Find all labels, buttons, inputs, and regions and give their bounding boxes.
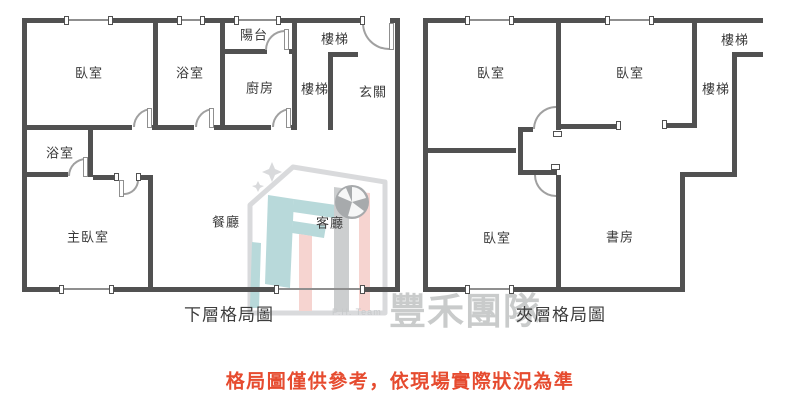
wall-segment: [732, 52, 737, 177]
door-arc: [533, 106, 556, 129]
door-leaf: [284, 29, 289, 50]
wall-segment: [27, 125, 132, 130]
room-label-dining: 餐廳: [212, 212, 240, 231]
wall-segment: [22, 172, 68, 177]
wall-segment: [22, 18, 27, 292]
window-marker: [234, 16, 239, 25]
wall-segment: [652, 18, 763, 23]
wall-segment: [220, 23, 225, 130]
disclaimer-text: 格局圖僅供參考，依現場實際狀況為準: [226, 367, 575, 394]
door-leaf: [83, 157, 88, 177]
wall-segment: [423, 18, 428, 292]
window: [608, 19, 652, 21]
wall-segment: [112, 287, 277, 292]
door-arc: [362, 23, 389, 50]
wall-segment: [518, 127, 523, 175]
window-marker: [64, 16, 69, 25]
door-leaf: [389, 23, 394, 50]
wall-segment: [556, 175, 561, 287]
room-label-stairs2-mezz: 樓梯: [702, 79, 730, 98]
window: [468, 19, 512, 21]
door-jamb-marker: [114, 173, 119, 181]
room-label-stairs2: 樓梯: [301, 79, 329, 98]
window-marker: [59, 285, 64, 294]
room-label-balcony: 陽台: [240, 25, 268, 44]
room-label-bedroom: 臥室: [75, 63, 103, 82]
window-marker: [605, 16, 610, 25]
door-leaf: [209, 108, 214, 128]
sparkle-icon: [252, 181, 264, 192]
wall-segment: [692, 23, 697, 128]
door-jamb-marker: [136, 173, 141, 181]
door-arc: [534, 175, 556, 197]
wall-segment: [152, 125, 194, 130]
wall-segment: [512, 287, 685, 292]
room-label-bath1: 浴室: [176, 63, 204, 82]
floorplan-image: P.H. Team 豐禾團隊: [0, 0, 800, 410]
room-label-study: 書房: [606, 227, 634, 246]
door-leaf: [286, 108, 291, 128]
logo-teal-bar: [265, 195, 294, 288]
caption-lower-plan: 下層格局圖: [184, 301, 274, 326]
wall-segment: [88, 130, 93, 177]
wall-segment: [363, 287, 400, 292]
room-label-living: 客廳: [316, 213, 344, 232]
room-label-master: 主臥室: [67, 227, 109, 246]
window: [62, 288, 112, 290]
caption-mezzanine-plan: 夾層格局圖: [516, 301, 606, 326]
door-jamb-marker: [551, 164, 560, 170]
window: [468, 288, 512, 290]
wall-segment: [561, 124, 617, 129]
window-marker: [108, 16, 113, 25]
room-label-bedroom3: 臥室: [483, 228, 511, 247]
wall-segment: [22, 18, 67, 23]
wall-segment: [680, 177, 685, 292]
window: [67, 19, 111, 21]
wall-segment: [667, 123, 692, 128]
wall-segment: [395, 18, 400, 292]
window-marker: [276, 16, 281, 25]
window-marker: [360, 285, 365, 294]
door-jamb-marker: [553, 131, 562, 137]
window-marker: [465, 16, 470, 25]
door-jamb-marker: [662, 120, 667, 129]
window-marker: [509, 285, 514, 294]
room-label-bath2: 浴室: [46, 143, 74, 162]
window: [237, 19, 279, 21]
wall-segment: [423, 18, 468, 23]
wall-segment: [93, 175, 116, 180]
wall-segment: [423, 287, 468, 292]
wall-segment: [111, 18, 180, 23]
wall-segment: [153, 23, 158, 130]
room-label-kitchen: 廚房: [246, 78, 274, 97]
wall-segment: [292, 23, 297, 130]
wall-segment: [220, 49, 267, 54]
door-leaf: [147, 108, 152, 128]
window: [277, 288, 363, 290]
window-marker: [649, 16, 654, 25]
door-leaf: [119, 180, 124, 197]
window-marker: [109, 285, 114, 294]
room-label-bedroom1: 臥室: [477, 63, 505, 82]
window-marker: [177, 16, 182, 25]
window-marker: [274, 285, 279, 294]
room-label-entry: 玄關: [359, 82, 387, 101]
window-marker: [465, 285, 470, 294]
door-jamb-marker: [360, 16, 365, 25]
room-label-bedroom2: 臥室: [616, 63, 644, 82]
wall-segment: [428, 148, 516, 153]
window-marker: [200, 16, 205, 25]
room-label-stairs1-mezz: 樓梯: [721, 30, 749, 49]
wall-segment: [148, 175, 153, 292]
watermark-subtext: P.H. Team: [332, 307, 382, 317]
wall-segment: [291, 125, 297, 130]
door-arc: [124, 180, 139, 195]
wall-segment: [214, 125, 271, 130]
logo-pink-stripe1: [299, 234, 312, 311]
window-marker: [509, 16, 514, 25]
wall-segment: [556, 23, 561, 130]
room-label-stairs1: 樓梯: [321, 29, 349, 48]
wall-segment: [737, 52, 763, 57]
wall-segment: [680, 172, 737, 177]
door-jamb-marker: [616, 121, 621, 130]
wall-segment: [22, 287, 62, 292]
